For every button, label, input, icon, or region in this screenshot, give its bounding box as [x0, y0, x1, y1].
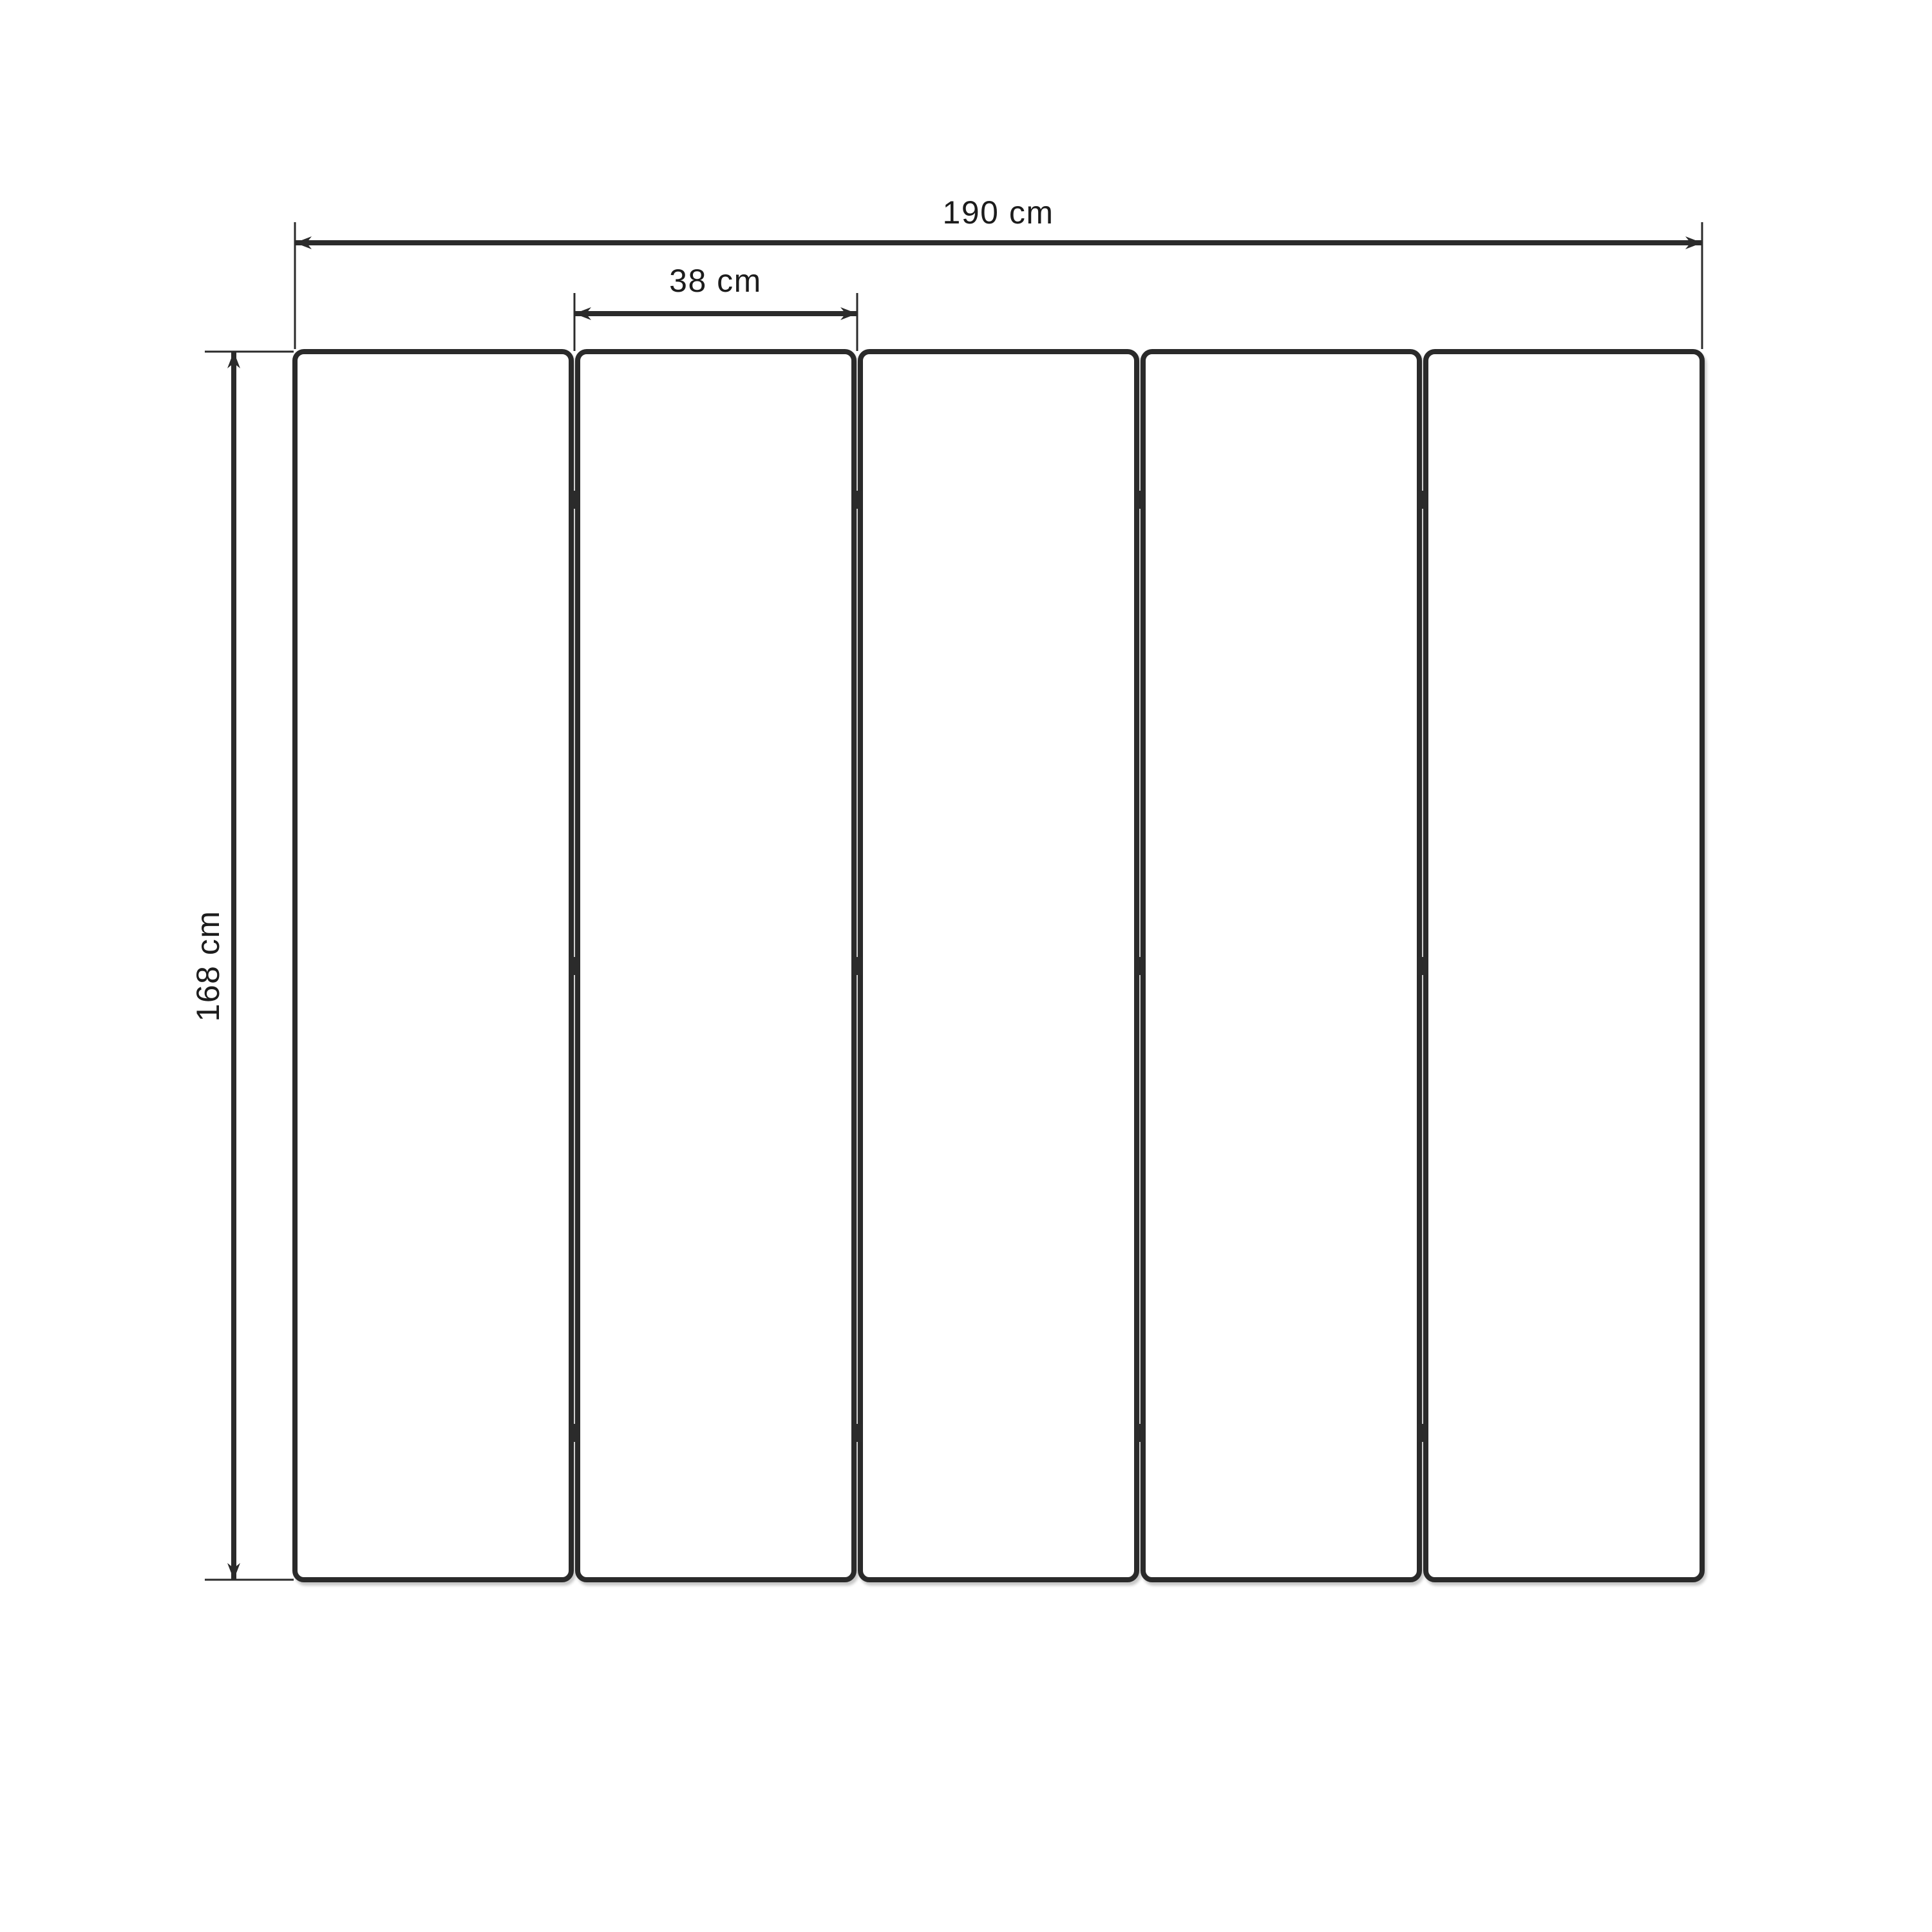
- panel-2: [578, 352, 854, 1580]
- hinge-joint4-1: [1417, 491, 1428, 509]
- panel-5: [1426, 352, 1702, 1580]
- hinge-joint1-1: [569, 491, 580, 509]
- panel-width-label: 38 cm: [669, 263, 762, 299]
- hinge-joint1-2: [569, 957, 580, 975]
- hinge-joint1-3: [569, 1424, 580, 1442]
- hinge-joint3-2: [1135, 957, 1145, 975]
- panel-4: [1143, 352, 1419, 1580]
- total-width-label: 190 cm: [943, 194, 1054, 231]
- hinge-joint3-3: [1135, 1424, 1145, 1442]
- hinge-joint3-1: [1135, 491, 1145, 509]
- hinge-joint2-1: [852, 491, 862, 509]
- panel-3: [860, 352, 1137, 1580]
- diagram-canvas: 190 cm 38 cm 168 cm: [0, 0, 1932, 1932]
- panel-1: [295, 352, 571, 1580]
- hinge-joint4-2: [1417, 957, 1428, 975]
- hinge-joint4-3: [1417, 1424, 1428, 1442]
- height-label: 168 cm: [190, 911, 226, 1022]
- hinge-joint2-2: [852, 957, 862, 975]
- hinge-joint2-3: [852, 1424, 862, 1442]
- panel-group: [295, 352, 1702, 1580]
- folding-screen-dimension-drawing: 190 cm 38 cm 168 cm: [0, 0, 1932, 1932]
